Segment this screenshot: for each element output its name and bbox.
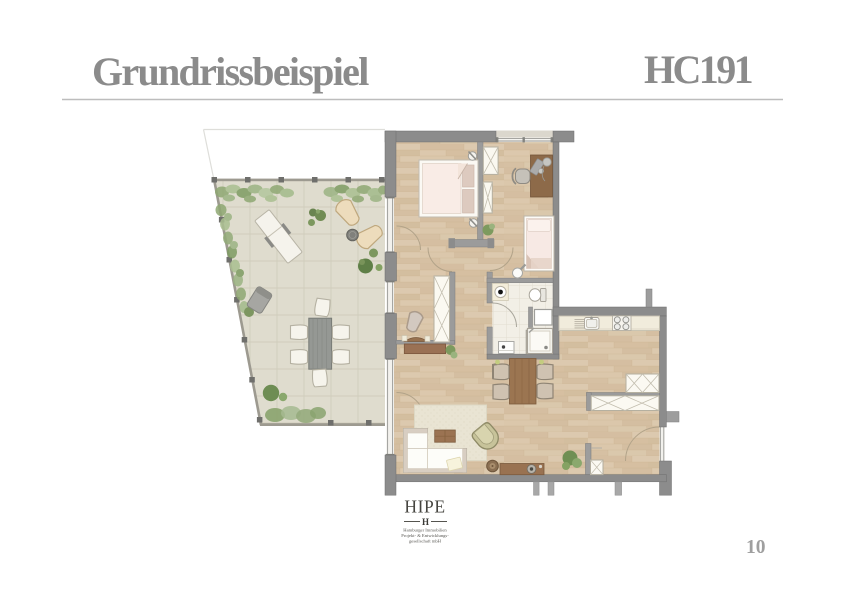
svg-text:Grundrissbeispiel: Grundrissbeispiel xyxy=(92,49,369,94)
svg-text:Projekt- & Entwicklungs-: Projekt- & Entwicklungs- xyxy=(401,533,449,538)
svg-text:gesellschaft mbH: gesellschaft mbH xyxy=(409,539,442,544)
svg-text:10: 10 xyxy=(746,537,766,558)
svg-text:HIPE: HIPE xyxy=(404,497,445,517)
svg-text:HC191: HC191 xyxy=(644,47,752,92)
svg-text:H: H xyxy=(422,517,429,527)
svg-text:Hamburger Immobilien: Hamburger Immobilien xyxy=(403,528,447,533)
